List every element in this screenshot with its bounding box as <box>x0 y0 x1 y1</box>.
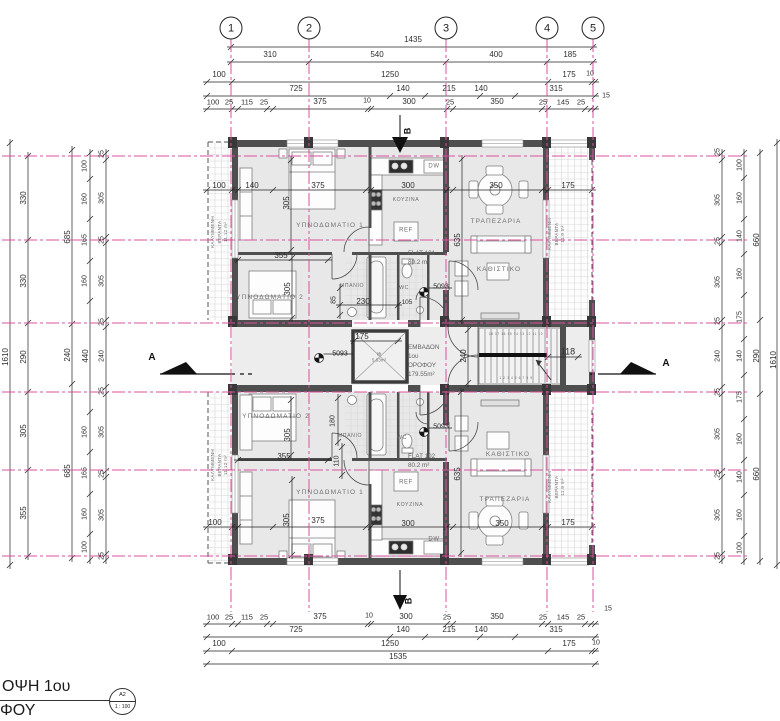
bed-102-2 <box>249 394 296 441</box>
title-block: ΟΨΗ 1ου ΦΟΥ A2 1 : 100 <box>0 672 250 721</box>
bed-102-1 <box>279 500 345 560</box>
drawing-title-line1: ΟΨΗ 1ου <box>2 678 70 696</box>
fridge-102 <box>394 472 418 491</box>
sofa-102 <box>471 459 531 476</box>
grid-bubble-2: 2 <box>298 17 321 40</box>
grid-bubble-3: 3 <box>435 17 458 40</box>
grid-bubble-1: 1 <box>220 17 243 40</box>
title-underline <box>0 700 110 701</box>
sheet-reference-bubble: A2 1 : 100 <box>109 688 136 715</box>
floor-plan-drawing: 1435310540400185100125017510725140215140… <box>0 0 780 721</box>
coffee-table <box>487 432 509 449</box>
armchair <box>455 416 468 431</box>
armchair <box>455 436 468 451</box>
wardrobe <box>240 472 252 544</box>
armchair <box>455 261 468 276</box>
bed-101-2 <box>249 271 296 318</box>
grid-bubble-5: 5 <box>582 17 605 40</box>
sheet-ref: A2 <box>110 689 135 702</box>
bed-101-1 <box>279 149 345 209</box>
wardrobe <box>240 395 252 450</box>
lift-shaft <box>353 331 407 382</box>
fridge-101 <box>394 222 418 241</box>
tv-unit <box>481 400 519 406</box>
armchair <box>455 281 468 296</box>
grid-bubble-4: 4 <box>536 17 559 40</box>
stair-handrail <box>479 353 547 357</box>
sheet-scale: 1 : 100 <box>110 702 135 713</box>
sink-102 <box>348 396 357 405</box>
coffee-table <box>487 263 509 280</box>
drawing-title-line2: ΦΟΥ <box>0 702 35 720</box>
wardrobe <box>240 168 252 240</box>
sink-101 <box>348 308 357 317</box>
plan-linework <box>0 0 780 721</box>
sofa-101 <box>471 236 531 253</box>
tv-unit <box>481 313 519 319</box>
